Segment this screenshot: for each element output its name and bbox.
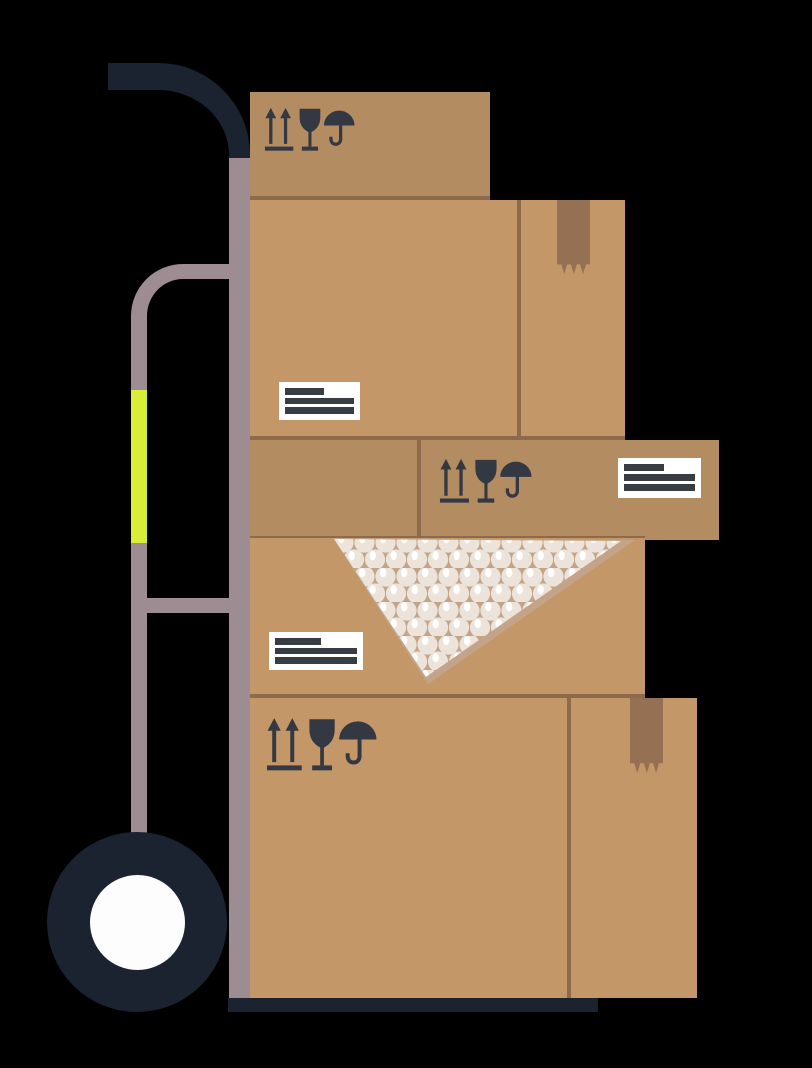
keep-dry-umbrella-icon [500, 462, 531, 496]
shipping-label [618, 458, 701, 498]
handtruck-top-handle [108, 63, 250, 166]
box-middle-wide [250, 440, 719, 540]
label-line [624, 474, 695, 481]
fragile-glass-icon [309, 719, 334, 770]
this-way-up-icon [267, 718, 302, 770]
shipping-label [279, 382, 360, 420]
packaging-symbols-row [439, 458, 532, 504]
fragile-glass-icon [475, 460, 496, 503]
box-seam [417, 440, 421, 540]
this-way-up-icon [265, 108, 293, 151]
packaging-symbols-row [266, 717, 377, 772]
handtruck-wheel-hub [90, 875, 185, 970]
box-top [250, 92, 490, 200]
tape-strip [630, 698, 663, 773]
handtruck-secondary-handle [131, 264, 249, 344]
tape-strip [557, 200, 590, 274]
label-line [624, 484, 695, 491]
bubble-wrap-bubbles [334, 539, 621, 677]
label-line [624, 464, 664, 471]
handtruck-crossbar [131, 598, 249, 613]
label-line [285, 398, 354, 405]
fragile-glass-icon [300, 109, 321, 151]
keep-dry-umbrella-icon [324, 111, 355, 145]
bubble-wrap-triangle [333, 538, 635, 686]
moving-boxes-handtruck-illustration [0, 0, 812, 1068]
box-bottom-large [250, 698, 697, 998]
keep-dry-umbrella-icon [339, 721, 376, 762]
label-line [285, 388, 324, 395]
label-line [275, 638, 321, 645]
packaging-symbols-row [264, 107, 355, 152]
box-seam [567, 698, 571, 998]
box-seam [517, 200, 521, 436]
label-line [285, 407, 354, 414]
box-upper-large [250, 200, 625, 440]
this-way-up-icon [440, 459, 469, 503]
handtruck-yellow-grip [131, 390, 147, 543]
handtruck-base-plate [228, 998, 598, 1012]
